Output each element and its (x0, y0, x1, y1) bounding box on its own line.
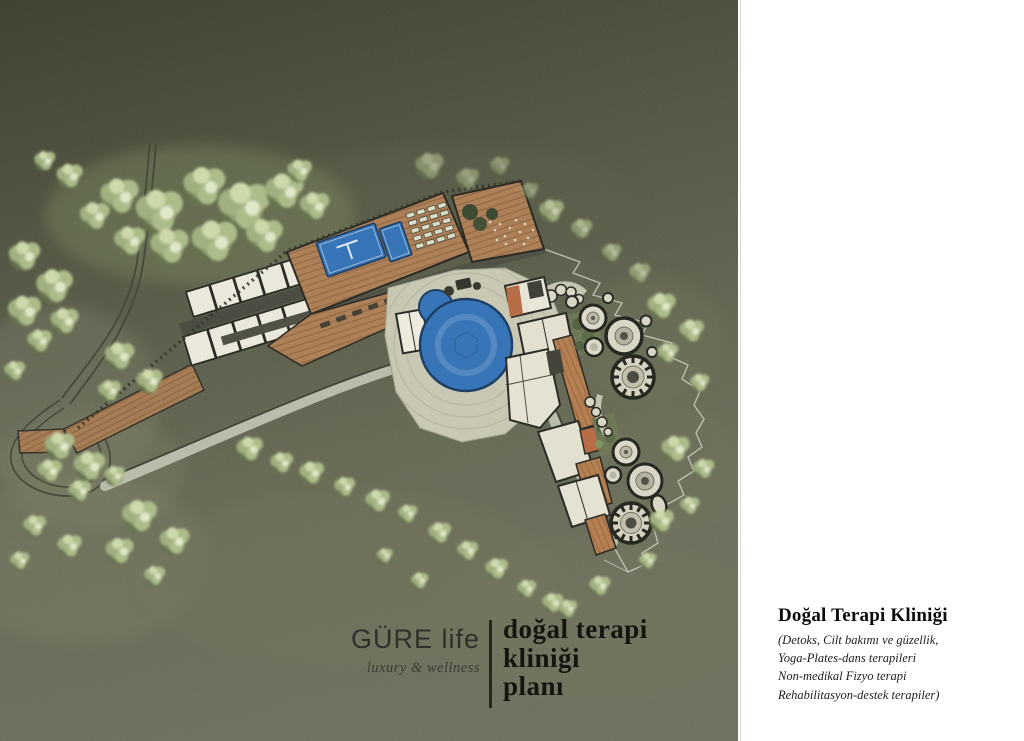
annotation-line: Yoga-Plates-dans terapileri (778, 649, 988, 667)
brand-tagline: luxury & wellness (318, 660, 480, 677)
logo-divider (489, 620, 492, 708)
plan-title-line: doğal terapi (503, 615, 648, 644)
annotation-title: Doğal Terapi Kliniği (778, 605, 988, 627)
presentation-board: GÜRE life luxury & wellness doğal terapi… (0, 0, 1024, 741)
plan-title-line: planı (503, 672, 648, 701)
annotation-line: Rehabilitasyon-destek terapiler) (778, 686, 988, 704)
plan-title: doğal terapi kliniği planı (503, 615, 648, 701)
annotation-line: (Detoks, Cilt bakımı ve güzellik, (778, 631, 988, 649)
brand-name: GÜRE life (318, 624, 480, 654)
plan-title-line: kliniği (503, 644, 648, 673)
annotation-block: Doğal Terapi Kliniği (Detoks, Cilt bakım… (778, 605, 988, 704)
annotation-line: Non-medikal Fizyo terapi (778, 667, 988, 685)
logo-block: GÜRE life luxury & wellness (318, 624, 480, 677)
